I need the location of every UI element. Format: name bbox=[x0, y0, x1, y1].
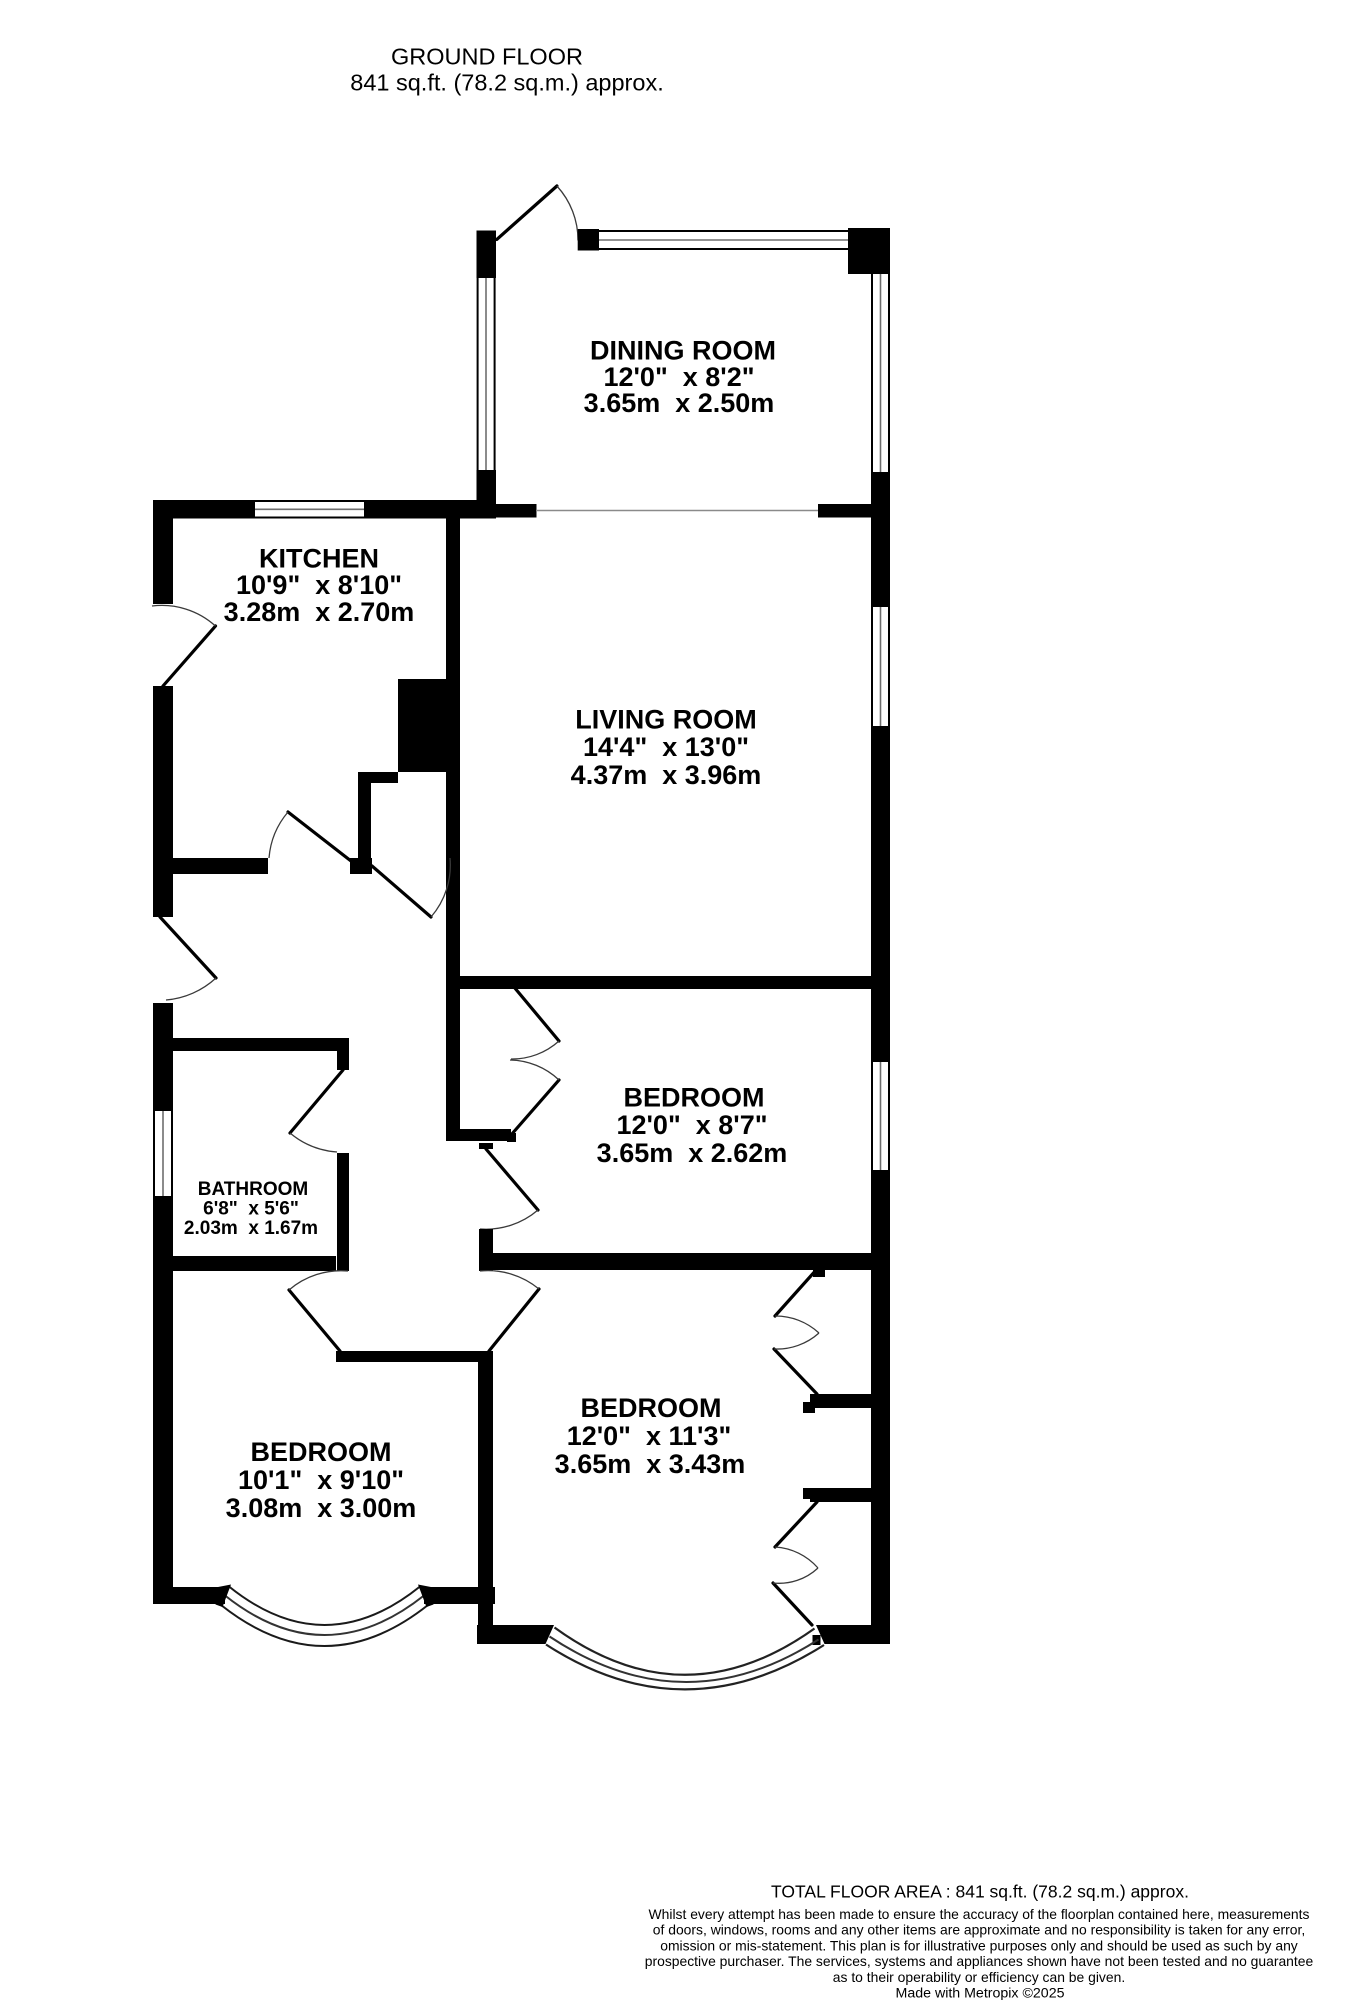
svg-text:TOTAL FLOOR AREA : 841 sq.ft.: TOTAL FLOOR AREA : 841 sq.ft. (78.2 sq.m… bbox=[771, 1882, 1189, 1902]
svg-text:4.37m x 3.96m: 4.37m x 3.96m bbox=[571, 760, 762, 790]
svg-text:3.65m x 2.50m: 3.65m x 2.50m bbox=[584, 388, 775, 418]
svg-text:841 sq.ft. (78.2 sq.m.) approx: 841 sq.ft. (78.2 sq.m.) approx. bbox=[350, 70, 664, 96]
svg-text:as to their operability or eff: as to their operability or efficiency ca… bbox=[833, 1969, 1125, 1985]
svg-text:GROUND FLOOR: GROUND FLOOR bbox=[391, 44, 583, 70]
svg-text:omission or mis-statement. Thi: omission or mis-statement. This plan is … bbox=[660, 1937, 1298, 1953]
svg-text:14'4" x 13'0": 14'4" x 13'0" bbox=[583, 732, 749, 762]
svg-text:3.28m x 2.70m: 3.28m x 2.70m bbox=[224, 597, 415, 627]
svg-text:3.08m x 3.00m: 3.08m x 3.00m bbox=[226, 1493, 417, 1523]
svg-text:BEDROOM: BEDROOM bbox=[581, 1393, 722, 1423]
svg-text:10'1" x 9'10": 10'1" x 9'10" bbox=[238, 1465, 404, 1495]
svg-text:Made with Metropix ©2025: Made with Metropix ©2025 bbox=[896, 1986, 1065, 2000]
svg-text:BATHROOM: BATHROOM bbox=[198, 1179, 308, 1200]
svg-text:DINING ROOM: DINING ROOM bbox=[590, 336, 776, 366]
svg-text:of doors, windows, rooms and a: of doors, windows, rooms and any other i… bbox=[653, 1922, 1305, 1938]
svg-text:12'0" x 8'7": 12'0" x 8'7" bbox=[616, 1110, 767, 1140]
svg-text:3.65m x 3.43m: 3.65m x 3.43m bbox=[555, 1449, 746, 1479]
svg-text:12'0" x 11'3": 12'0" x 11'3" bbox=[567, 1421, 732, 1451]
svg-text:Whilst every attempt has been: Whilst every attempt has been made to en… bbox=[649, 1906, 1310, 1922]
svg-text:2.03m x 1.67m: 2.03m x 1.67m bbox=[184, 1218, 318, 1239]
svg-text:BEDROOM: BEDROOM bbox=[251, 1437, 392, 1467]
svg-text:10'9" x 8'10": 10'9" x 8'10" bbox=[236, 570, 402, 600]
svg-text:6'8" x 5'6": 6'8" x 5'6" bbox=[203, 1199, 299, 1220]
svg-text:prospective purchaser. The ser: prospective purchaser. The services, sys… bbox=[645, 1953, 1314, 1969]
svg-text:LIVING ROOM: LIVING ROOM bbox=[575, 705, 757, 735]
svg-text:3.65m x 2.62m: 3.65m x 2.62m bbox=[597, 1138, 788, 1168]
svg-text:BEDROOM: BEDROOM bbox=[624, 1083, 765, 1113]
svg-text:KITCHEN: KITCHEN bbox=[259, 544, 379, 574]
